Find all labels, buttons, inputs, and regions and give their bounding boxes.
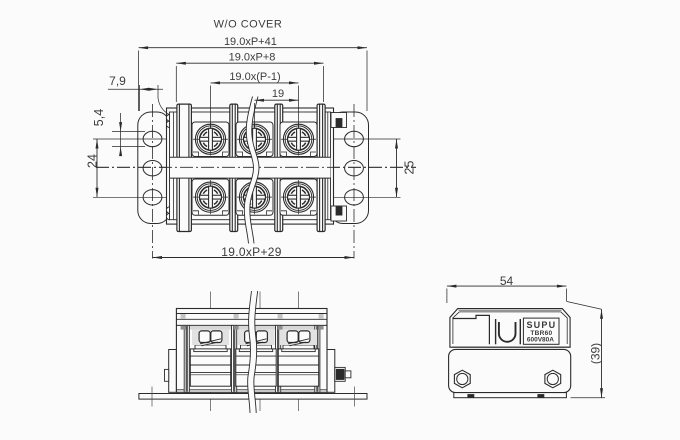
svg-text:SUPU: SUPU [526,320,556,330]
svg-text:19.0xP+29: 19.0xP+29 [221,245,281,259]
svg-text:25: 25 [403,161,417,175]
svg-text:7,9: 7,9 [109,74,126,88]
svg-text:19.0x(P-1): 19.0x(P-1) [229,71,280,83]
svg-text:600V80A: 600V80A [527,337,554,344]
svg-text:19: 19 [272,88,284,100]
svg-text:24: 24 [86,154,100,168]
svg-text:19.0xP+8: 19.0xP+8 [229,51,276,63]
svg-text:W/O COVER: W/O COVER [214,19,283,31]
svg-text:(39): (39) [589,343,603,364]
svg-text:54: 54 [500,274,514,288]
svg-text:19.0xP+41: 19.0xP+41 [224,36,277,48]
svg-text:5,4: 5,4 [92,109,106,126]
